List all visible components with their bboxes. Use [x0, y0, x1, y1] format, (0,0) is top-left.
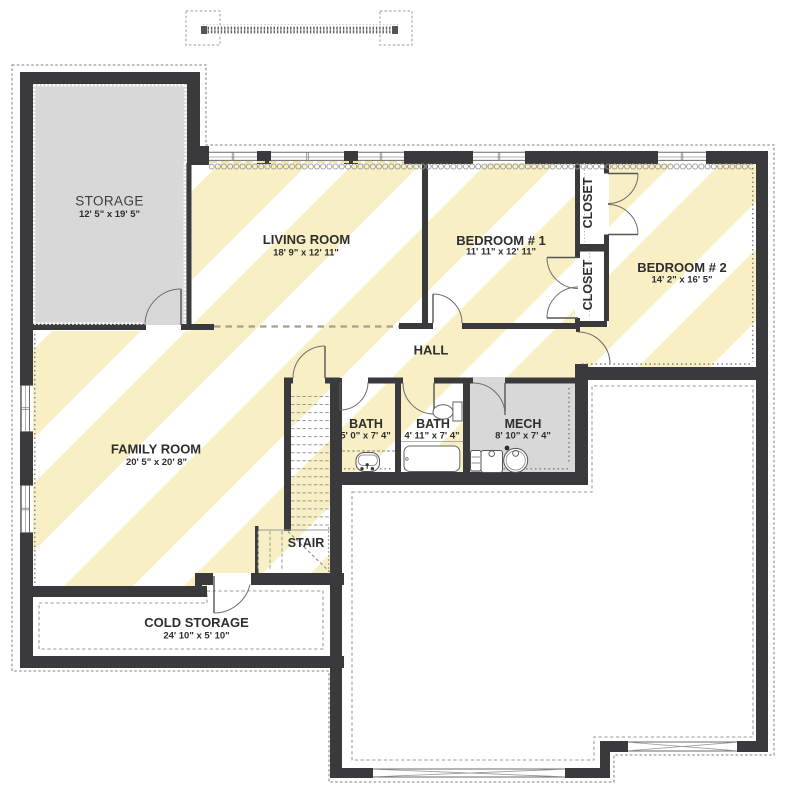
svg-text:BEDROOM # 2: BEDROOM # 2: [637, 260, 727, 275]
svg-text:20' 5" x 20' 8": 20' 5" x 20' 8": [126, 457, 187, 468]
svg-text:COLD STORAGE: COLD STORAGE: [144, 615, 249, 630]
svg-text:18' 9" x 12' 11": 18' 9" x 12' 11": [273, 247, 339, 258]
svg-text:8' 10" x 7' 4": 8' 10" x 7' 4": [495, 431, 551, 442]
svg-text:LIVING ROOM: LIVING ROOM: [263, 232, 350, 247]
svg-text:MECH: MECH: [505, 417, 542, 431]
svg-text:11' 11" x 12' 11": 11' 11" x 12' 11": [466, 247, 536, 258]
svg-text:FAMILY ROOM: FAMILY ROOM: [111, 442, 201, 457]
svg-text:BATH: BATH: [416, 417, 450, 431]
svg-text:STORAGE: STORAGE: [75, 194, 144, 209]
svg-text:HALL: HALL: [414, 343, 449, 358]
svg-text:BATH: BATH: [349, 417, 383, 431]
svg-text:24' 10" x 5' 10": 24' 10" x 5' 10": [163, 631, 229, 642]
svg-text:14' 2" x 16' 5": 14' 2" x 16' 5": [651, 275, 712, 286]
svg-text:12' 5" x 19' 5": 12' 5" x 19' 5": [79, 209, 140, 220]
svg-text:STAIR: STAIR: [288, 536, 325, 550]
svg-text:CLOSET: CLOSET: [581, 177, 595, 228]
svg-text:4' 11" x 7' 4": 4' 11" x 7' 4": [404, 431, 459, 442]
svg-text:CLOSET: CLOSET: [581, 259, 595, 310]
svg-text:5' 0" x 7' 4": 5' 0" x 7' 4": [340, 431, 391, 442]
